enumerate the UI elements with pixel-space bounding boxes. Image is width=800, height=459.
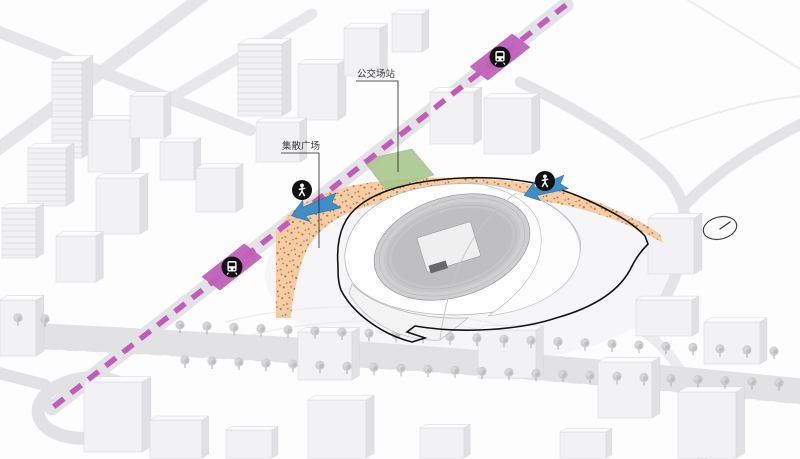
tree xyxy=(580,338,589,351)
building xyxy=(678,387,745,458)
tree xyxy=(450,366,459,379)
building xyxy=(2,204,44,259)
building xyxy=(56,232,103,282)
building xyxy=(704,318,767,364)
building xyxy=(238,39,291,116)
building xyxy=(256,118,307,162)
building xyxy=(28,143,74,206)
bus-station-label: 公交场站 xyxy=(357,68,396,80)
building xyxy=(226,426,278,458)
tree xyxy=(283,325,292,338)
tree xyxy=(261,359,270,372)
tree xyxy=(396,364,405,377)
compass-icon xyxy=(701,213,739,243)
tree xyxy=(607,339,616,352)
pedestrian-icon-east xyxy=(535,171,555,191)
gathering-plaza-label: 集散广场 xyxy=(282,140,320,152)
building xyxy=(96,173,148,234)
building xyxy=(130,92,171,138)
tree xyxy=(234,358,243,371)
tree xyxy=(256,324,265,337)
building xyxy=(196,164,243,212)
building xyxy=(560,429,612,458)
building xyxy=(0,295,44,356)
road-right-branch xyxy=(684,122,800,206)
building xyxy=(52,56,93,158)
tree xyxy=(634,341,643,354)
building xyxy=(430,87,482,144)
building xyxy=(636,296,699,336)
tree xyxy=(288,360,297,373)
building xyxy=(84,377,151,452)
building xyxy=(598,357,660,418)
building xyxy=(160,138,201,180)
building xyxy=(648,213,702,274)
tree xyxy=(688,343,697,356)
tree xyxy=(207,357,216,370)
building xyxy=(484,93,540,154)
building xyxy=(150,416,209,458)
building xyxy=(420,424,470,458)
stadium-site-access-diagram: 公交场站 集散广场 xyxy=(0,0,800,459)
building xyxy=(298,328,359,380)
tree xyxy=(229,323,238,336)
tree xyxy=(423,365,432,378)
tree xyxy=(180,355,189,368)
pedestrian-icon-west xyxy=(292,180,312,200)
building xyxy=(392,10,429,52)
building xyxy=(308,395,374,458)
building xyxy=(298,59,346,120)
tree xyxy=(769,347,778,360)
tree xyxy=(369,363,378,376)
